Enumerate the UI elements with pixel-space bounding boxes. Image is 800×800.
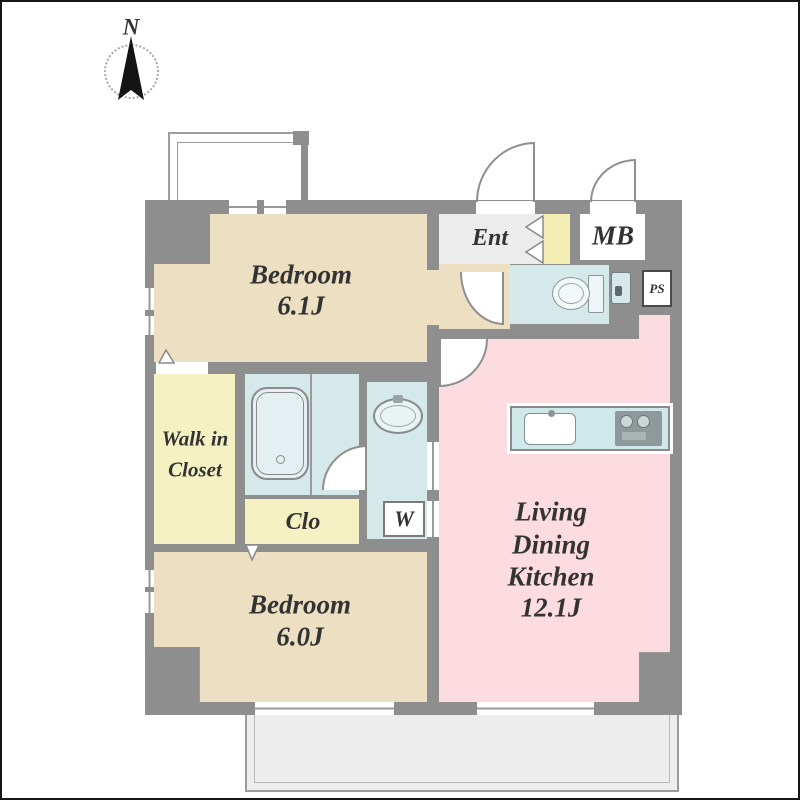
washroom-door-post [427, 490, 439, 501]
entrance-door-swing [476, 142, 535, 202]
bedroom-6-1-doorway [427, 270, 439, 325]
wic-folding-door-icon [158, 349, 175, 364]
meter-box-door-swing [590, 159, 636, 202]
bedroom-6-1-label: Bedroom [250, 262, 352, 289]
washbasin-faucet [393, 395, 403, 403]
closet-folding-door-icon [245, 544, 260, 561]
floor-plan: N [0, 0, 800, 800]
pipe-space-label: PS [649, 282, 664, 295]
balcony-inner-line [254, 715, 670, 783]
bathroom-divider-line [310, 374, 312, 495]
toilet-bowl [558, 283, 584, 304]
upper-balcony-pillar [293, 131, 309, 145]
stove-burner-2 [637, 415, 650, 428]
window-left-1 [145, 288, 154, 310]
meter-box-label: MB [592, 223, 634, 250]
meter-box-door-opening [590, 201, 636, 214]
kitchen-sink-icon [524, 413, 576, 445]
window-bottom-ldk [477, 702, 594, 715]
ldk-area: 12.1J [521, 595, 582, 622]
window-top-1 [229, 200, 257, 214]
window-bottom-bedroom [255, 702, 394, 715]
ldk-label-line3: Kitchen [507, 564, 594, 591]
compass-arrow-icon [115, 35, 148, 103]
bathtub-drain [276, 455, 285, 464]
bedroom-6-0-area: 6.0J [276, 624, 323, 651]
closet-label: Clo [286, 510, 321, 534]
washbasin-bowl [380, 405, 416, 427]
window-left-4 [145, 592, 154, 613]
shoe-cabinet [544, 214, 570, 264]
stove-grill [622, 432, 646, 440]
washer-label: W [394, 508, 414, 530]
window-left-3 [145, 570, 154, 587]
entrance-door-opening [476, 201, 535, 214]
kitchen-sink-faucet [548, 410, 555, 417]
upper-balcony-wall-bar [301, 145, 308, 201]
shoe-cabinet-door-icon [525, 215, 544, 264]
entrance-label: Ent [472, 226, 508, 250]
upper-balcony-inner-line [177, 142, 308, 201]
stove-burner-1 [620, 415, 633, 428]
walk-in-closet-label-line1: Walk in [162, 429, 229, 450]
window-left-2 [145, 316, 154, 335]
room-bedroom-6-1-extension [154, 264, 210, 362]
toilet-tank [588, 275, 604, 313]
ldk-label-line2: Dining [512, 532, 590, 559]
bedroom-6-1-area: 6.1J [277, 293, 324, 320]
bedroom-6-0-label: Bedroom [249, 592, 351, 619]
pipe-space-box: PS [642, 270, 672, 307]
walk-in-closet-label-line2: Closet [168, 460, 222, 481]
window-top-2 [264, 200, 286, 214]
ldk-label-line1: Living [515, 499, 587, 526]
hand-basin-faucet [615, 286, 622, 296]
